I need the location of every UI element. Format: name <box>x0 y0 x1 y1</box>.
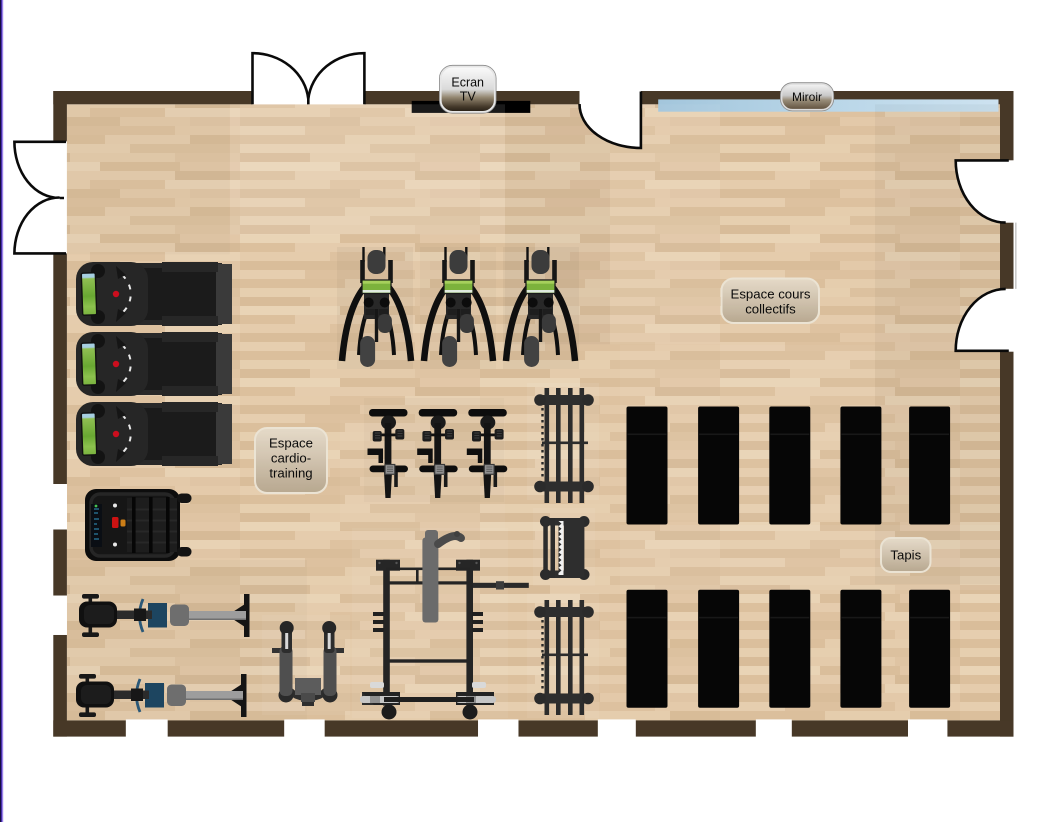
svg-text:Espace cours: Espace cours <box>731 287 811 302</box>
svg-text:TV: TV <box>460 90 477 104</box>
svg-text:Espace: Espace <box>269 436 313 451</box>
svg-text:cardio-: cardio- <box>271 451 311 466</box>
svg-text:Tapis: Tapis <box>890 548 921 563</box>
svg-text:Miroir: Miroir <box>792 90 822 104</box>
svg-text:training: training <box>269 466 312 481</box>
svg-text:collectifs: collectifs <box>745 302 796 317</box>
svg-text:Ecran: Ecran <box>451 76 484 90</box>
